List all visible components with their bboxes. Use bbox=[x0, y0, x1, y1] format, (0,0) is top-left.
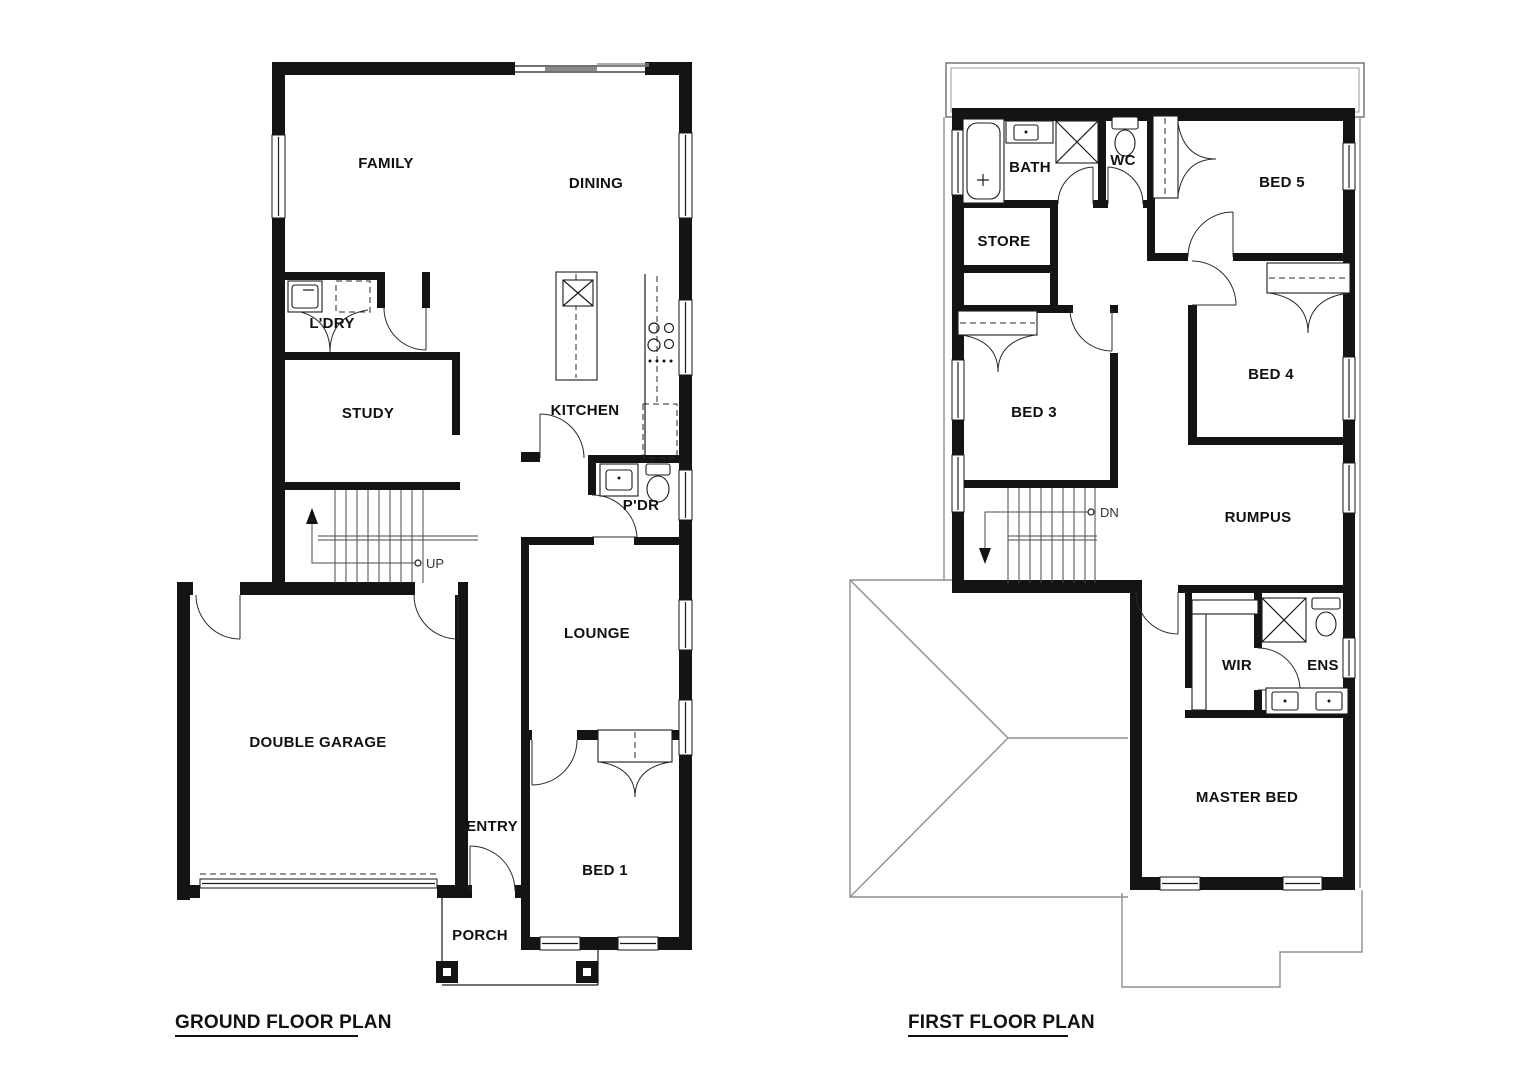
washer-space bbox=[336, 281, 370, 312]
pantry-space bbox=[643, 404, 677, 458]
floor-title-ground: GROUND FLOOR PLAN bbox=[175, 1012, 392, 1033]
bath-vanity-fixture bbox=[1006, 121, 1053, 143]
room-label-ensuite: ENS bbox=[1307, 657, 1339, 674]
powder-vanity-fixture bbox=[600, 464, 638, 496]
room-label-bed3: BED 3 bbox=[1011, 404, 1057, 421]
first-floor-plan: DN BATH WC BED 5 STORE BED 3 BED 4 RUMPU… bbox=[850, 63, 1364, 1036]
room-label-entry: ENTRY bbox=[466, 818, 518, 835]
ground-floor-stairs: UP bbox=[306, 490, 478, 583]
ground-floor-plan: UP FAMILY DINING L'DRY STUDY KITCHEN P'D… bbox=[175, 62, 692, 1036]
room-label-lounge: LOUNGE bbox=[564, 625, 630, 642]
stair-direction-label: UP bbox=[426, 556, 444, 571]
room-label-bath: BATH bbox=[1009, 159, 1051, 176]
room-label-wc: WC bbox=[1110, 152, 1136, 169]
room-label-garage: DOUBLE GARAGE bbox=[249, 734, 386, 751]
bathtub-fixture bbox=[963, 119, 1004, 203]
room-label-bed4: BED 4 bbox=[1248, 366, 1294, 383]
porch-roof-outline bbox=[1122, 890, 1362, 987]
room-label-porch: PORCH bbox=[452, 927, 508, 944]
room-label-master: MASTER BED bbox=[1196, 789, 1298, 806]
room-label-bed5: BED 5 bbox=[1259, 174, 1305, 191]
bed4-wardrobe bbox=[1267, 263, 1350, 333]
garage-door bbox=[200, 874, 437, 888]
room-label-dining: DINING bbox=[569, 175, 623, 192]
up-arrow-icon bbox=[306, 508, 318, 524]
kitchen-bench bbox=[643, 274, 677, 458]
room-label-store: STORE bbox=[978, 233, 1031, 250]
floor-plan-sheet: UP FAMILY DINING L'DRY STUDY KITCHEN P'D… bbox=[0, 0, 1536, 1087]
room-label-study: STUDY bbox=[342, 405, 394, 422]
stair-direction-label: DN bbox=[1100, 505, 1119, 520]
sliding-door bbox=[515, 63, 649, 72]
floor-title-first: FIRST FLOOR PLAN bbox=[908, 1012, 1095, 1033]
laundry-tub-fixture bbox=[288, 281, 322, 312]
wc-toilet-icon bbox=[1112, 117, 1138, 156]
bed5-wardrobe bbox=[1153, 116, 1216, 198]
bath-shower-fixture bbox=[1056, 121, 1098, 163]
bed1-wardrobe bbox=[598, 730, 672, 762]
ensuite-shower-fixture bbox=[1262, 598, 1306, 642]
ground-floor-title: GROUND FLOOR PLAN bbox=[175, 1012, 392, 1036]
room-label-rumpus: RUMPUS bbox=[1225, 509, 1292, 526]
first-floor-stairs: DN bbox=[979, 488, 1119, 583]
floor-plan-canvas: UP FAMILY DINING L'DRY STUDY KITCHEN P'D… bbox=[0, 0, 1536, 1087]
kitchen-island bbox=[556, 272, 597, 380]
ensuite-toilet-icon bbox=[1312, 598, 1340, 636]
wir-shelves bbox=[1192, 600, 1258, 710]
ensuite-vanity-fixture bbox=[1266, 688, 1348, 714]
cooktop-icon bbox=[648, 323, 674, 363]
down-arrow-icon bbox=[979, 548, 991, 564]
first-floor-title: FIRST FLOOR PLAN bbox=[908, 1012, 1095, 1036]
room-label-kitchen: KITCHEN bbox=[551, 402, 620, 419]
room-label-bed1: BED 1 bbox=[582, 862, 628, 879]
room-label-powder: P'DR bbox=[623, 497, 659, 514]
ground-floor-walls bbox=[177, 62, 692, 950]
room-label-wir: WIR bbox=[1222, 657, 1252, 674]
garage-roof-outline bbox=[850, 580, 1128, 897]
room-label-laundry: L'DRY bbox=[309, 315, 354, 332]
room-label-family: FAMILY bbox=[358, 155, 413, 172]
first-floor-walls bbox=[952, 108, 1355, 890]
ground-floor-doors bbox=[196, 308, 670, 891]
bed3-wardrobe bbox=[958, 311, 1037, 372]
